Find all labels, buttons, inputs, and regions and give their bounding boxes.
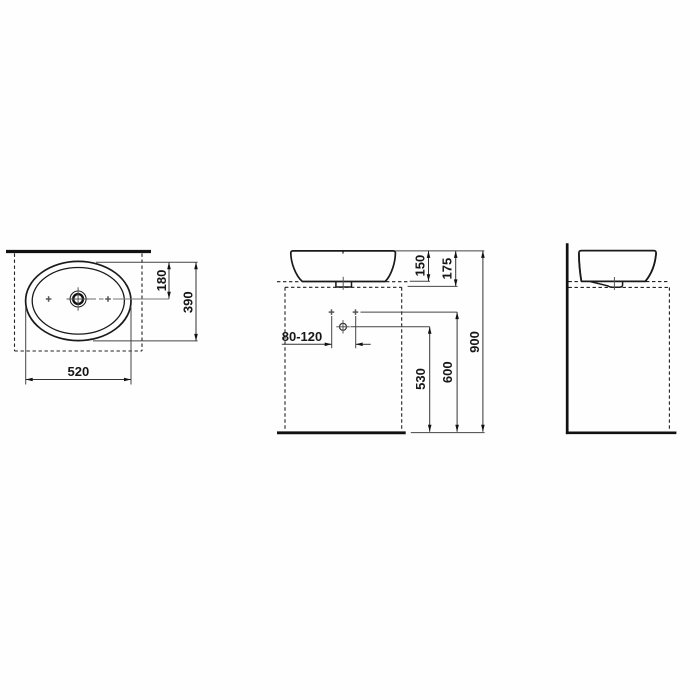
svg-text:900: 900 — [467, 331, 482, 353]
svg-text:180: 180 — [154, 270, 169, 292]
svg-text:600: 600 — [440, 361, 455, 383]
svg-text:80-120: 80-120 — [282, 329, 322, 344]
svg-text:390: 390 — [181, 291, 196, 313]
svg-text:520: 520 — [68, 364, 90, 379]
svg-text:530: 530 — [413, 368, 428, 390]
svg-text:150: 150 — [413, 255, 428, 277]
svg-text:175: 175 — [439, 258, 454, 280]
